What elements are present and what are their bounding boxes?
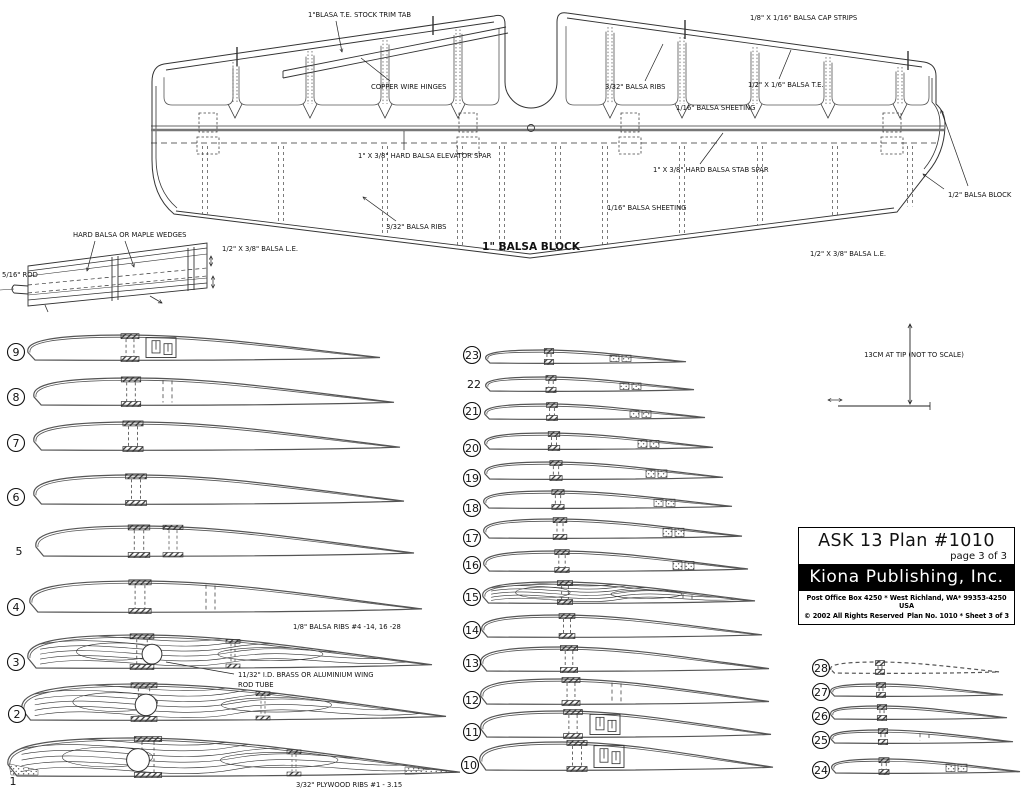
rib-10: 10 — [462, 741, 774, 774]
publisher-name: Kiona Publishing, Inc. — [799, 564, 1014, 591]
rib-15: 15 — [464, 581, 756, 606]
spar-notch-bottom — [544, 360, 553, 365]
rib-joiner-slot — [594, 746, 624, 768]
rib-28: 28 — [813, 660, 1000, 677]
spar-notch-bottom — [878, 740, 887, 745]
rod-end — [0, 285, 28, 294]
wing-rod-hole — [142, 644, 162, 664]
rib-outline — [34, 422, 400, 450]
rib-outline — [30, 581, 422, 612]
rib-number-27: 27 — [814, 686, 828, 699]
spar-notch-top — [879, 758, 889, 763]
rib-19: 19 — [464, 461, 724, 487]
rib-13: 13 — [464, 646, 770, 673]
plan-sheet: 1"BLASA T.E. STOCK TRIM TABCOPPER WIRE H… — [0, 0, 1024, 790]
rib-outline — [831, 684, 1003, 696]
rib-number-20: 20 — [465, 442, 479, 455]
rib-number-17: 17 — [465, 532, 479, 545]
rib-9: 9 — [8, 334, 381, 362]
rib-5: 5 — [16, 525, 415, 558]
spar-notch-bottom — [877, 716, 886, 721]
spar-notch-bottom — [546, 388, 556, 393]
tip-dimension-note — [828, 324, 930, 410]
label-balsa-te: 1/2" X 1/6" BALSA T.E. — [748, 81, 824, 89]
rib-outline — [36, 526, 414, 556]
spar-notch-top — [562, 678, 580, 683]
rib-outline — [481, 711, 771, 737]
label-plywood-ribs-note: 3/32" PLYWOOD RIBS #1 - 3.15 — [296, 781, 402, 789]
rib-number-24: 24 — [814, 764, 828, 777]
spar-notch-bottom — [560, 668, 577, 673]
label-trim-tab: 1"BLASA T.E. STOCK TRIM TAB — [308, 11, 411, 19]
rib-number-18: 18 — [465, 502, 479, 515]
rib-outline — [22, 684, 446, 720]
spar-notch-top — [878, 729, 887, 734]
publisher-address: Post Office Box 4250 * West Richland, WA… — [799, 591, 1014, 611]
title-block: ASK 13 Plan #1010 page 3 of 3 Kiona Publ… — [798, 527, 1015, 625]
spar-notch-top — [550, 461, 562, 466]
rib-number-3: 3 — [13, 656, 20, 669]
hinge-wire-ticks — [237, 16, 908, 70]
rib-number-21: 21 — [465, 405, 479, 418]
rib-outline — [481, 647, 769, 671]
plan-number: Plan No. 1010 * Sheet 3 of 3 — [907, 612, 1009, 620]
label-balsa-le-left: 1/2" X 3/8" BALSA L.E. — [222, 245, 298, 253]
label-stab-spar: 1" X 3/8" HARD BALSA STAB SPAR — [653, 166, 769, 174]
label-rod: 5/16" ROD — [2, 271, 38, 279]
label-sheeting-top: 1/16" BALSA SHEETING — [676, 104, 755, 112]
rib-18: 18 — [464, 490, 733, 517]
spar-notch-bottom — [877, 693, 886, 698]
spar-notch-top — [123, 421, 143, 426]
spar-notch-top — [877, 683, 886, 688]
rib-outline — [831, 662, 999, 673]
plan-title: ASK 13 Plan #1010 — [799, 528, 1014, 551]
spar-notch-top — [134, 737, 161, 742]
label-balsa-block-half: 1/2" BALSA BLOCK — [948, 191, 1012, 199]
rib-2: 2 — [9, 683, 447, 723]
spar-notch-top — [544, 349, 553, 354]
plywood-grain — [40, 634, 420, 666]
rib-outline — [831, 706, 1007, 719]
spar-notch-top — [877, 705, 886, 710]
rib-outline — [8, 738, 460, 776]
spar-notch-bottom — [567, 767, 587, 772]
spar-notch-top — [548, 432, 560, 437]
spar-notch-top — [559, 614, 575, 619]
spar-notch-bottom — [121, 402, 140, 407]
label-wedges: HARD BALSA OR MAPLE WEDGES — [73, 231, 186, 239]
plywood-grain — [35, 683, 434, 718]
rib-number-9: 9 — [13, 346, 20, 359]
spar-notch-bottom — [134, 773, 161, 778]
label-copper-hinges: COPPER WIRE HINGES — [371, 83, 446, 91]
spar-notch-top — [121, 377, 140, 382]
rib-number-15: 15 — [465, 591, 479, 604]
rib-number-23: 23 — [465, 349, 479, 362]
rib-outline — [28, 335, 380, 360]
rib-number-6: 6 — [13, 491, 20, 504]
spar-notch-top — [546, 376, 556, 381]
label-balsa-ribs-top: 3/32" BALSA RIBS — [605, 83, 666, 91]
spar-notch-bottom — [129, 609, 151, 614]
rib-3: 3 — [8, 634, 433, 671]
spar-notch-top — [121, 334, 139, 339]
rib-number-16: 16 — [465, 559, 479, 572]
spar-notch-top — [560, 646, 577, 651]
spar-notch-top — [876, 661, 885, 666]
spar-notch-top — [552, 490, 564, 495]
spar-notch-bottom — [550, 476, 562, 481]
spar-notch-bottom — [131, 717, 157, 722]
rib-outline — [486, 377, 694, 391]
spar-notch-bottom — [552, 505, 564, 510]
rib-number-13: 13 — [465, 657, 479, 670]
title-block-footer: © 2002 All Rights Reserved Plan No. 1010… — [799, 611, 1014, 624]
spar-notch-bottom — [879, 770, 889, 775]
label-sheeting-mid: 1/16" BALSA SHEETING — [607, 204, 686, 212]
spar-notch-bottom — [555, 568, 569, 573]
rib-number-12: 12 — [465, 694, 479, 707]
spar-notch-bottom — [876, 670, 885, 675]
spar-notch-bottom — [121, 357, 139, 362]
rib-outline — [831, 730, 1013, 743]
spar-notch-bottom — [557, 600, 572, 605]
spar-notch-bottom — [130, 665, 154, 670]
rib-number-5: 5 — [16, 545, 23, 558]
rib-number-19: 19 — [465, 472, 479, 485]
rib-number-8: 8 — [13, 391, 20, 404]
spar-notch-top — [567, 741, 587, 746]
rib-number-10: 10 — [463, 759, 477, 772]
wing-rod-hole — [127, 749, 150, 772]
rib-outline — [34, 475, 404, 504]
page-indicator: page 3 of 3 — [799, 551, 1014, 564]
spar-notch-bottom — [562, 701, 580, 706]
rib-number-1: 1 — [10, 775, 17, 788]
spar-notch-top — [547, 403, 558, 408]
rib-outline — [481, 679, 769, 704]
spar-notch-top — [129, 580, 151, 585]
rib-12: 12 — [464, 678, 770, 709]
rib-number-25: 25 — [814, 734, 828, 747]
label-balsa-ribs-note: 1/8" BALSA RIBS #4 -14, 16 -28 — [293, 623, 401, 631]
rib-number-14: 14 — [465, 624, 479, 637]
stab-outline — [152, 13, 945, 258]
label-balsa-ribs-mid: 3/32" BALSA RIBS — [386, 223, 447, 231]
spar-notch-top — [555, 550, 569, 555]
rib-8: 8 — [8, 377, 395, 407]
label-elevator-spar: 1" X 3/8" HARD BALSA ELEVATOR SPAR — [358, 152, 492, 160]
rib-22: 22 — [467, 376, 694, 393]
spar-notch-top — [553, 518, 567, 523]
spar-notch-top — [557, 581, 572, 586]
rib-20: 20 — [464, 432, 714, 457]
wedge-detail-labels: HARD BALSA OR MAPLE WEDGES5/16" ROD — [2, 231, 186, 279]
wing-rod-hole — [135, 694, 157, 716]
plywood-grain — [22, 737, 447, 774]
rib-number-26: 26 — [814, 710, 828, 723]
stab-plan-view — [151, 13, 945, 258]
rib-27: 27 — [813, 683, 1004, 701]
spar-notch-bottom — [126, 501, 147, 506]
stab-plan-labels: 1"BLASA T.E. STOCK TRIM TABCOPPER WIRE H… — [222, 11, 1012, 258]
rib-number-28: 28 — [814, 662, 828, 675]
spar-notch-top — [126, 474, 147, 479]
rib-outline — [480, 742, 773, 770]
rib-26: 26 — [813, 705, 1008, 725]
rib-outline — [34, 378, 394, 405]
spar-notch-bottom — [123, 447, 143, 452]
trim-tab-strip — [283, 27, 508, 78]
spar-notch-bottom — [564, 734, 583, 739]
rib-24: 24 — [813, 758, 1021, 779]
rib-6: 6 — [8, 474, 405, 506]
rib-number-2: 2 — [14, 708, 21, 721]
label-wing-rod-tube-1: 11/32" I.D. BRASS OR ALUMINIUM WING — [238, 671, 373, 679]
rib-number-4: 4 — [13, 601, 20, 614]
rib-11: 11 — [464, 710, 772, 741]
spar-notch-bottom — [559, 634, 575, 639]
rib-4: 4 — [8, 580, 423, 616]
label-cap-strips: 1/8" X 1/16" BALSA CAP STRIPS — [750, 14, 857, 22]
rib-25: 25 — [813, 729, 1014, 749]
copyright-note: © 2002 All Rights Reserved — [804, 612, 904, 620]
plan-canvas: 1"BLASA T.E. STOCK TRIM TABCOPPER WIRE H… — [0, 0, 1024, 790]
rib-21: 21 — [464, 403, 706, 421]
label-balsa-block-1in: 1" BALSA BLOCK — [482, 241, 581, 253]
rib-23: 23 — [464, 347, 687, 365]
spar-notch-bottom — [547, 416, 558, 421]
rib-number-7: 7 — [13, 437, 20, 450]
rib-7: 7 — [8, 421, 401, 452]
label-balsa-le-right: 1/2" X 3/8" BALSA L.E. — [810, 250, 886, 258]
rib-16: 16 — [464, 550, 749, 574]
spar-notch-top — [564, 710, 583, 715]
rib-outline — [486, 350, 686, 363]
rib-number-22: 22 — [467, 378, 481, 391]
spar-notch-bottom — [548, 446, 560, 451]
spar-notch-top — [130, 634, 154, 639]
label-tip-dimension: 13CM AT TIP (NOT TO SCALE) — [864, 351, 964, 359]
rib-number-11: 11 — [465, 726, 479, 739]
spar-notch-bottom — [128, 553, 150, 558]
spar-notch-top — [131, 683, 157, 688]
label-wing-rod-tube-2: ROD TUBE — [238, 681, 274, 689]
rib-17: 17 — [464, 518, 743, 547]
rib-14: 14 — [464, 614, 763, 639]
rib-outline — [832, 759, 1020, 773]
spar-notch-bottom — [553, 535, 567, 540]
spar-notch-top — [128, 525, 150, 530]
